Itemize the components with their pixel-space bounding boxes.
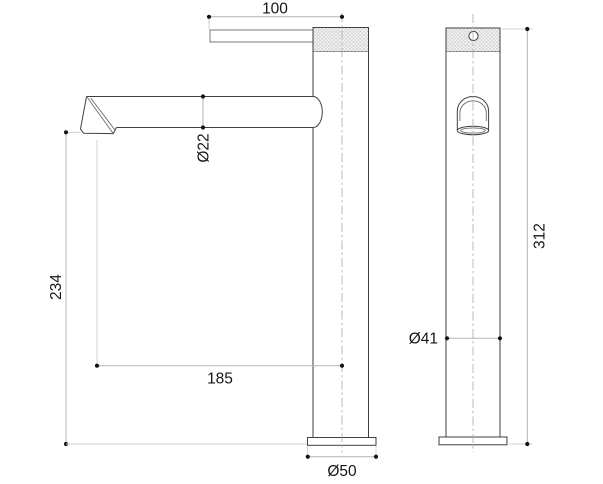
set-screw-hole xyxy=(469,31,478,40)
handle-cap xyxy=(313,28,369,53)
dimension-dot xyxy=(498,336,502,340)
dimension-dot xyxy=(201,125,205,129)
spout-fill xyxy=(81,97,314,134)
dim-label-185: 185 xyxy=(207,371,233,388)
dim-label-312: 312 xyxy=(532,223,549,249)
dimension-dot xyxy=(95,364,99,368)
faucet-technical-drawing: 100 Ø22 234 185 Ø50 Ø41 xyxy=(0,0,603,484)
dimension-total-height: 312 xyxy=(502,27,549,446)
dimension-dot xyxy=(525,27,529,31)
dimension-outlet-height: 234 xyxy=(48,130,307,446)
dimension-dot xyxy=(306,455,310,459)
dim-label-234: 234 xyxy=(48,274,65,300)
handle-lever xyxy=(210,30,314,42)
dim-label-o22: Ø22 xyxy=(196,133,213,162)
dimension-dot xyxy=(201,94,205,98)
technical-drawing-page: 100 Ø22 234 185 Ø50 Ø41 xyxy=(0,0,603,484)
dim-label-100: 100 xyxy=(262,1,288,18)
dimension-handle-offset: 100 xyxy=(207,1,344,30)
dimension-dot xyxy=(340,364,344,368)
dimension-dot xyxy=(445,336,449,340)
dimension-dot xyxy=(525,442,529,446)
dimension-dot xyxy=(374,455,378,459)
extension-line xyxy=(308,447,377,460)
dim-label-o41: Ø41 xyxy=(409,331,438,348)
dim-label-o50: Ø50 xyxy=(327,463,357,480)
dimension-dot xyxy=(64,130,68,134)
dimension-spout-reach: 185 xyxy=(95,140,344,388)
extension-line xyxy=(502,29,533,444)
dimension-dot xyxy=(207,15,211,19)
front-view xyxy=(439,14,507,452)
dimension-dot xyxy=(340,15,344,19)
